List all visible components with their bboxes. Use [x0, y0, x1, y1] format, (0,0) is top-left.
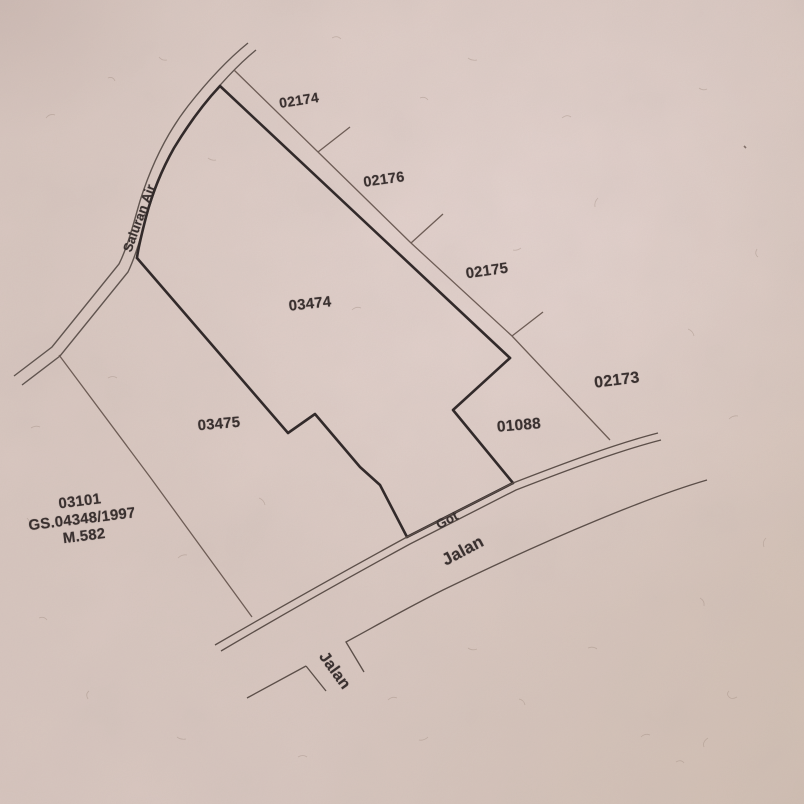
map-linework: [0, 0, 804, 804]
scanned-survey-map: Saluran Air 02174 02176 02175 02173 0347…: [0, 0, 804, 804]
paper-grain-texture: [0, 0, 804, 804]
parcel-label-01088: 01088: [496, 415, 542, 437]
